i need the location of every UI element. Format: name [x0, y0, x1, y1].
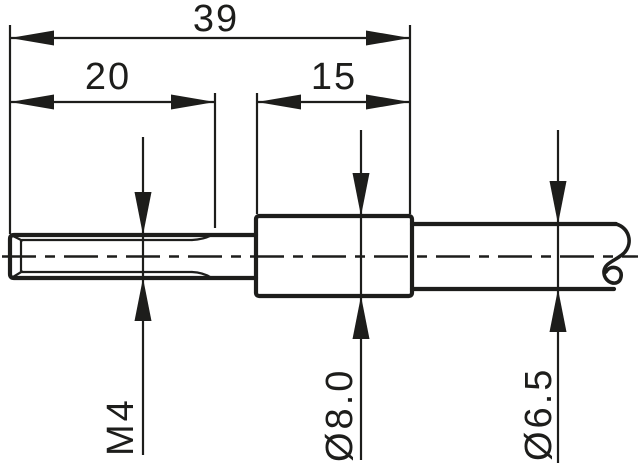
- dimension-thread-size: M4: [100, 137, 152, 456]
- arrowhead-down-icon: [135, 192, 152, 235]
- dimension-label-cable-diameter: Ø6.5: [518, 367, 560, 461]
- dimension-overall-length: 39: [10, 0, 410, 234]
- dimension-label-body-length: 15: [311, 56, 357, 98]
- arrowhead-right-icon: [366, 31, 410, 46]
- arrowhead-left-icon: [10, 31, 54, 46]
- dimension-body-length: 15: [257, 56, 410, 214]
- arrowhead-left-icon: [257, 95, 301, 110]
- technical-drawing: 39 20 15 M4 Ø8.0 Ø6.5: [0, 0, 640, 464]
- arrowhead-up-icon: [550, 289, 567, 332]
- dimension-label-thread-size: M4: [100, 397, 142, 456]
- arrowhead-up-icon: [353, 296, 370, 339]
- arrowhead-right-icon: [366, 95, 410, 110]
- arrowhead-right-icon: [171, 95, 215, 110]
- arrowhead-up-icon: [135, 278, 152, 321]
- arrowhead-down-icon: [550, 181, 567, 224]
- arrowhead-left-icon: [10, 95, 54, 110]
- dimension-label-body-diameter: Ø8.0: [319, 368, 361, 462]
- arrowhead-down-icon: [353, 173, 370, 216]
- drawing-svg: 39 20 15 M4 Ø8.0 Ø6.5: [0, 0, 640, 464]
- dimension-thread-length: 20: [10, 56, 215, 228]
- dimension-label-thread-length: 20: [85, 56, 131, 98]
- dimension-label-overall-length: 39: [193, 0, 239, 40]
- break-symbol: [604, 224, 629, 283]
- dimension-cable-diameter: Ø6.5: [518, 130, 567, 463]
